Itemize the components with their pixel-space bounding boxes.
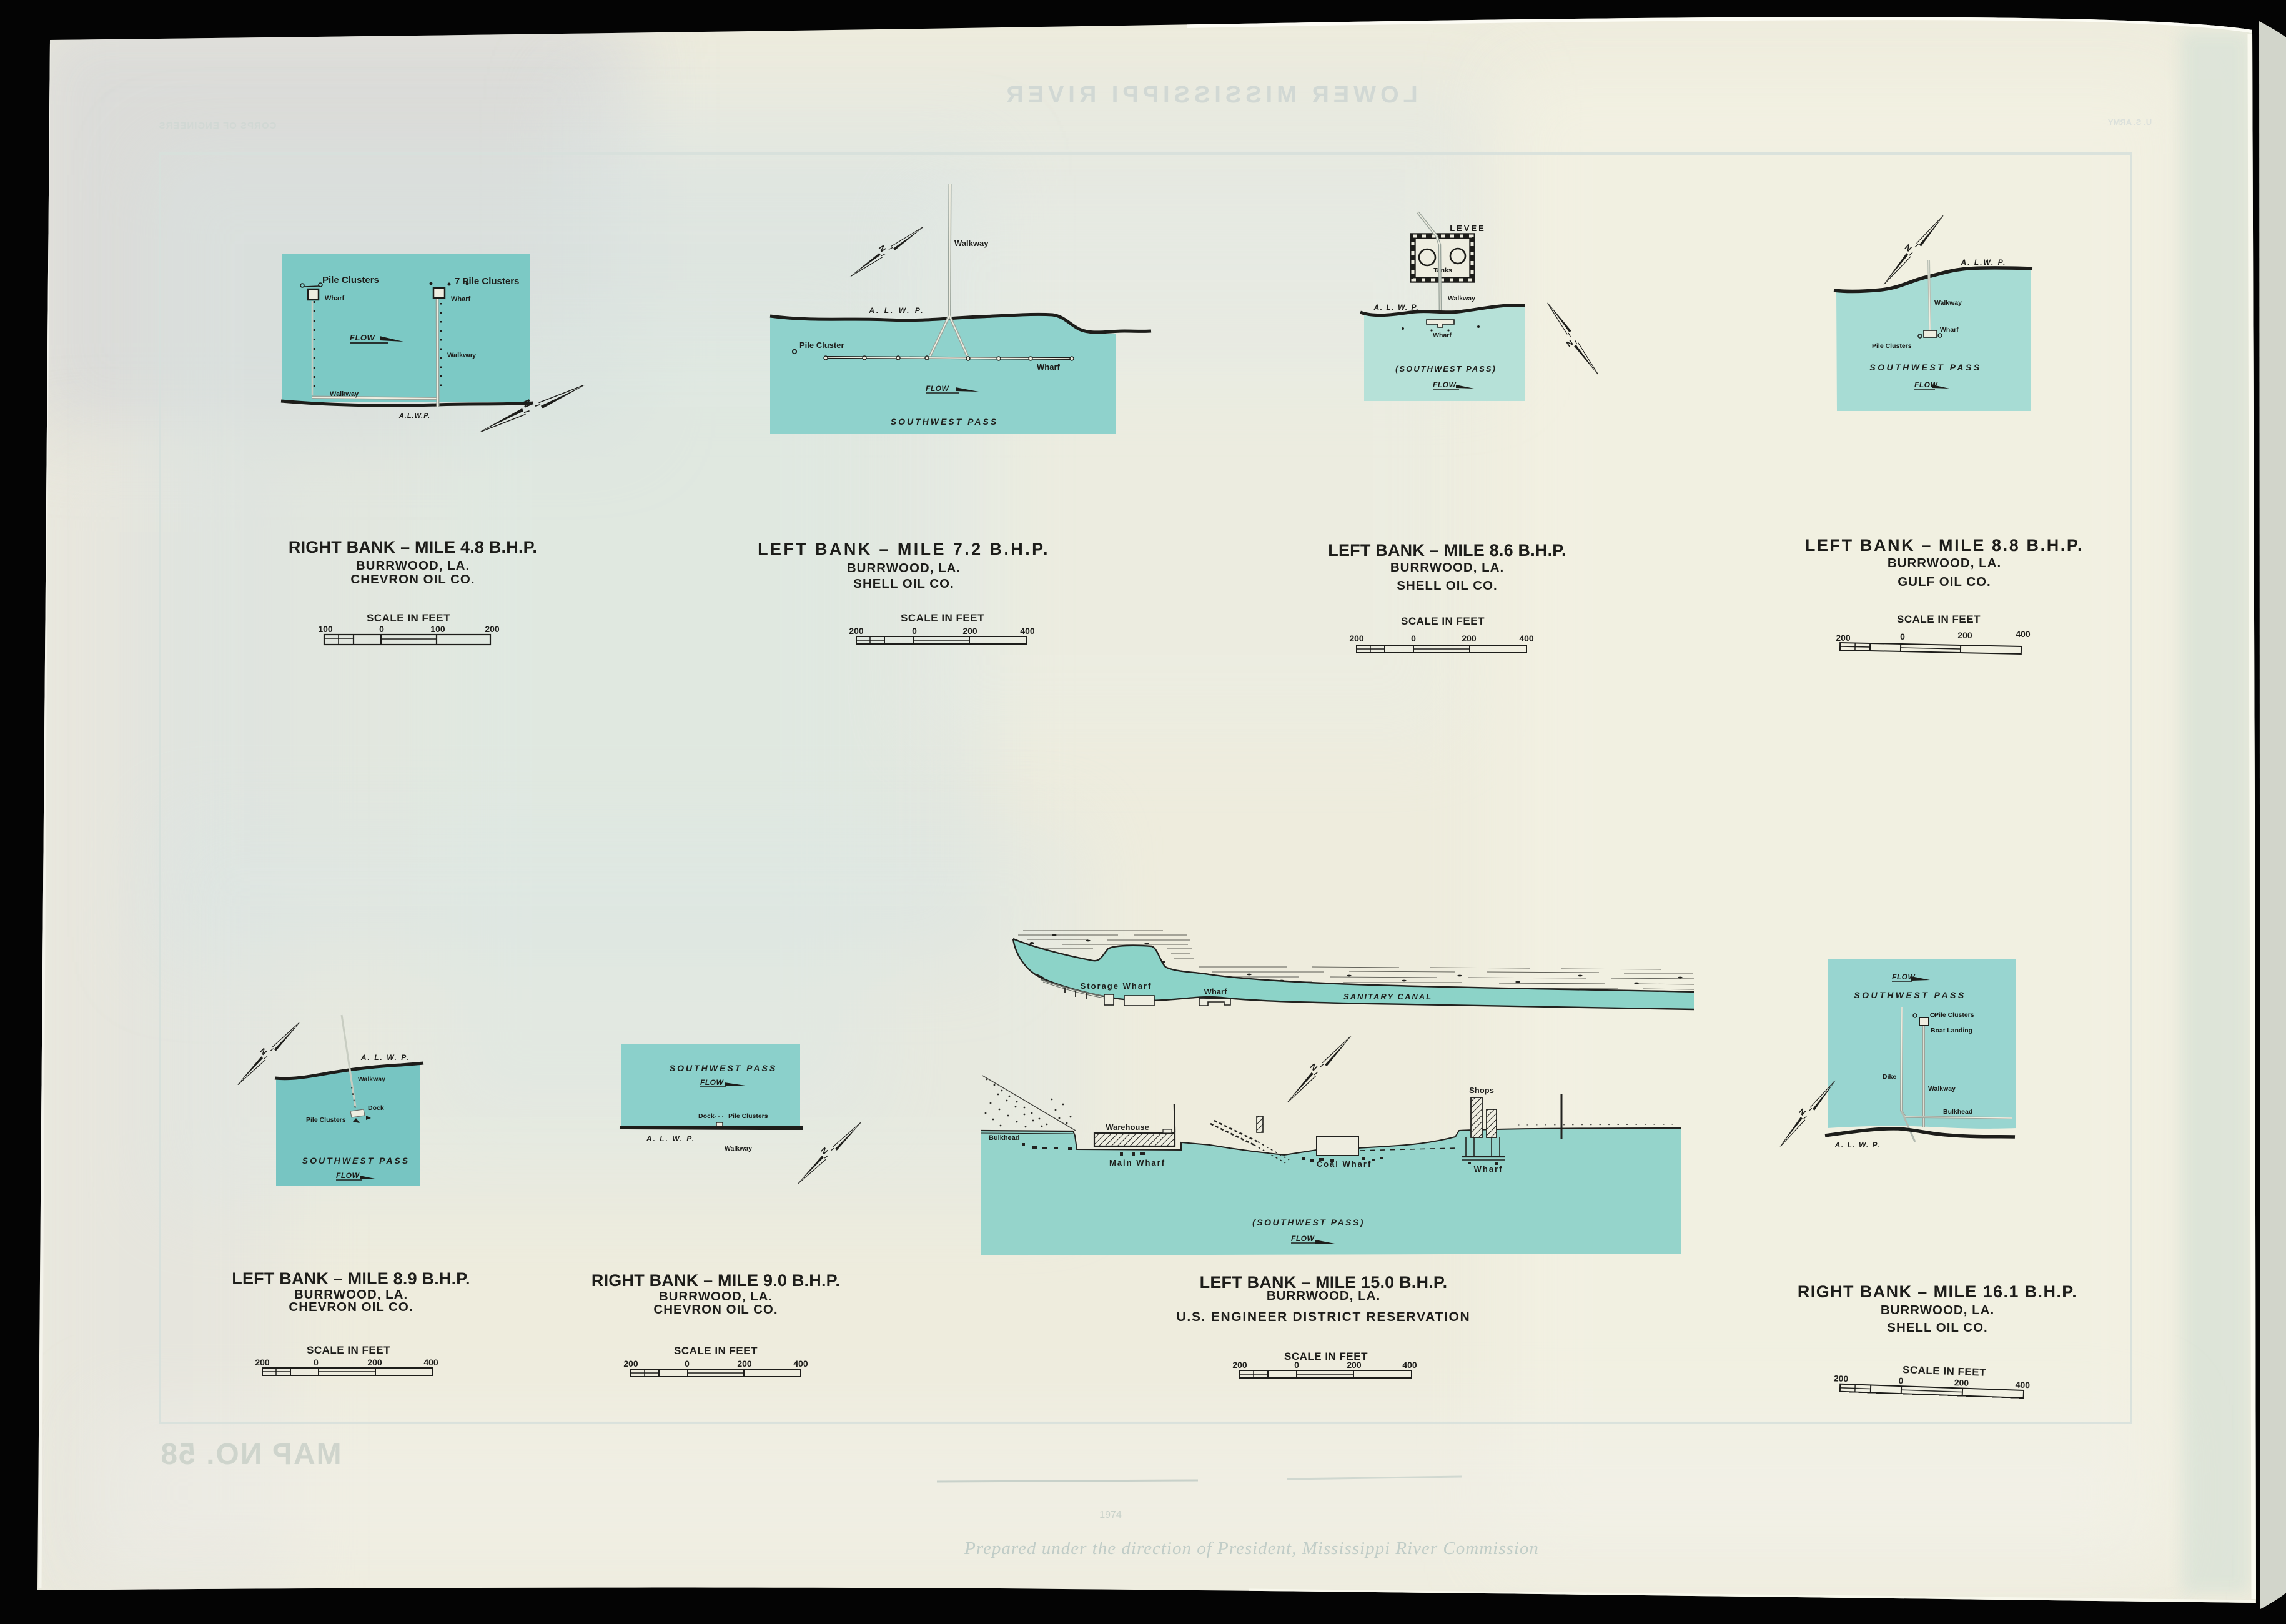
svg-text:RIGHT BANK – MILE 16.1 B.H.P.: RIGHT BANK – MILE 16.1 B.H.P. (1798, 1282, 2077, 1301)
svg-text:GULF OIL CO.: GULF OIL CO. (1898, 575, 1991, 589)
svg-text:SHELL OIL CO.: SHELL OIL CO. (1397, 578, 1497, 593)
svg-text:LOWER MISSISSIPPI RIVER: LOWER MISSISSIPPI RIVER (1002, 82, 1418, 108)
svg-text:CHEVRON OIL CO.: CHEVRON OIL CO. (289, 1300, 413, 1314)
svg-text:100: 100 (318, 624, 333, 634)
svg-text:SOUTHWEST PASS: SOUTHWEST PASS (670, 1063, 777, 1073)
svg-text:Pile Clusters: Pile Clusters (728, 1112, 768, 1120)
svg-text:SOUTHWEST PASS: SOUTHWEST PASS (1854, 990, 1966, 1000)
svg-text:Walkway: Walkway (954, 239, 989, 248)
svg-text:Walkway: Walkway (1928, 1085, 1956, 1092)
svg-text:Bulkhead: Bulkhead (1943, 1108, 1972, 1116)
svg-text:0: 0 (685, 1359, 690, 1369)
svg-text:LEFT BANK – MILE 8.6 B.H.P.: LEFT BANK – MILE 8.6 B.H.P. (1328, 541, 1566, 560)
svg-text:A.L.W.P.: A.L.W.P. (398, 412, 430, 420)
svg-text:Walkway: Walkway (358, 1076, 385, 1083)
svg-text:Wharf: Wharf (1433, 332, 1452, 339)
svg-text:200: 200 (1462, 633, 1477, 643)
svg-text:(SOUTHWEST PASS): (SOUTHWEST PASS) (1252, 1217, 1365, 1227)
svg-text:SOUTHWEST PASS: SOUTHWEST PASS (891, 417, 998, 427)
svg-text:0: 0 (912, 626, 917, 636)
svg-text:Wharf: Wharf (451, 295, 471, 303)
svg-text:FLOW: FLOW (700, 1078, 724, 1087)
svg-text:U.S. ENGINEER DISTRICT RESERVA: U.S. ENGINEER DISTRICT RESERVATION (1177, 1310, 1471, 1324)
svg-text:A. L. W. P.: A. L. W. P. (868, 306, 924, 315)
svg-text:SOUTHWEST PASS: SOUTHWEST PASS (1869, 362, 1981, 372)
svg-text:A. L. W. P.: A. L. W. P. (646, 1134, 695, 1143)
svg-text:SOUTHWEST PASS: SOUTHWEST PASS (302, 1156, 410, 1166)
svg-text:400: 400 (1402, 1360, 1417, 1370)
svg-text:RIGHT BANK – MILE 4.8 B.H.P.: RIGHT BANK – MILE 4.8 B.H.P. (289, 538, 537, 557)
svg-text:0: 0 (1898, 1375, 1904, 1385)
svg-text:0: 0 (1294, 1360, 1299, 1370)
svg-text:200: 200 (255, 1357, 270, 1367)
svg-text:400: 400 (793, 1359, 808, 1369)
svg-text:BURRWOOD, LA.: BURRWOOD, LA. (1267, 1289, 1380, 1303)
svg-text:Pile Cluster: Pile Cluster (799, 340, 844, 350)
svg-text:Wharf: Wharf (1204, 987, 1228, 996)
svg-text:FLOW: FLOW (926, 384, 949, 393)
svg-text:0: 0 (1900, 631, 1905, 641)
svg-text:Walkway: Walkway (330, 390, 359, 398)
svg-text:SCALE IN FEET: SCALE IN FEET (674, 1345, 758, 1357)
svg-text:BURRWOOD, LA.: BURRWOOD, LA. (847, 561, 961, 575)
svg-text:MAP NO. 58: MAP NO. 58 (159, 1438, 341, 1471)
svg-text:200: 200 (1834, 1373, 1849, 1384)
svg-text:Dike: Dike (1883, 1073, 1896, 1081)
svg-text:Walkway: Walkway (725, 1145, 752, 1152)
svg-text:Walkway: Walkway (447, 352, 477, 359)
svg-text:Main Wharf: Main Wharf (1109, 1158, 1165, 1167)
svg-text:Storage Wharf: Storage Wharf (1081, 981, 1152, 991)
svg-text:A. L. W. P.: A. L. W. P. (1834, 1141, 1881, 1149)
svg-text:FLOW: FLOW (336, 1171, 360, 1180)
svg-text:200: 200 (737, 1359, 752, 1369)
svg-text:Pile Clusters: Pile Clusters (322, 275, 379, 285)
svg-text:1974: 1974 (1099, 1510, 1122, 1520)
svg-text:U. S. ARMY: U. S. ARMY (2108, 117, 2152, 127)
svg-text:400: 400 (2015, 1380, 2030, 1390)
svg-text:Shops: Shops (1469, 1086, 1494, 1095)
svg-text:200: 200 (1836, 633, 1851, 643)
svg-text:200: 200 (1232, 1360, 1247, 1370)
svg-text:200: 200 (1954, 1377, 1969, 1388)
svg-text:FLOW: FLOW (350, 333, 375, 342)
svg-text:FLOW: FLOW (1433, 380, 1457, 389)
svg-text:Walkway: Walkway (1934, 299, 1962, 307)
svg-text:FLOW: FLOW (1291, 1234, 1315, 1243)
svg-text:200: 200 (1349, 633, 1364, 643)
svg-text:Wharf: Wharf (1474, 1164, 1503, 1174)
svg-text:SCALE IN FEET: SCALE IN FEET (367, 612, 450, 624)
svg-text:SCALE IN FEET: SCALE IN FEET (1897, 613, 1981, 625)
svg-text:Pile Clusters: Pile Clusters (1872, 342, 1912, 350)
svg-text:400: 400 (423, 1357, 438, 1367)
svg-text:Dock: Dock (368, 1104, 384, 1112)
svg-text:LEFT BANK – MILE 8.9 B.H.P.: LEFT BANK – MILE 8.9 B.H.P. (232, 1269, 470, 1288)
svg-text:Coal Wharf: Coal Wharf (1317, 1159, 1372, 1169)
svg-text:BURRWOOD, LA.: BURRWOOD, LA. (1888, 556, 2001, 570)
svg-text:SCALE IN FEET: SCALE IN FEET (901, 612, 984, 624)
svg-text:SHELL OIL CO.: SHELL OIL CO. (853, 577, 954, 591)
svg-text:Pile Clusters: Pile Clusters (1934, 1011, 1974, 1019)
svg-text:BURRWOOD, LA.: BURRWOOD, LA. (659, 1289, 773, 1304)
svg-text:A. L. W. P.: A. L. W. P. (1373, 303, 1420, 312)
svg-text:LEVEE: LEVEE (1450, 224, 1486, 233)
svg-text:SCALE IN FEET: SCALE IN FEET (307, 1344, 390, 1356)
svg-text:0: 0 (314, 1357, 319, 1367)
svg-text:BURRWOOD, LA.: BURRWOOD, LA. (1881, 1303, 1994, 1317)
svg-text:Prepared under the direction o: Prepared under the direction of Presiden… (964, 1538, 1539, 1558)
svg-text:Wharf: Wharf (1037, 362, 1061, 372)
svg-text:LEFT BANK – MILE 7.2 B.H.P.: LEFT BANK – MILE 7.2 B.H.P. (758, 540, 1050, 558)
svg-text:A. L.W. P.: A. L.W. P. (1961, 258, 2007, 267)
svg-text:CORPS OF ENGINEERS: CORPS OF ENGINEERS (159, 121, 277, 131)
svg-text:Tanks: Tanks (1433, 267, 1452, 274)
svg-text:CHEVRON OIL CO.: CHEVRON OIL CO. (350, 572, 475, 587)
svg-text:LEFT BANK – MILE 8.8 B.H.P.: LEFT BANK – MILE 8.8 B.H.P. (1805, 536, 2084, 555)
svg-text:(SOUTHWEST PASS): (SOUTHWEST PASS) (1395, 364, 1497, 374)
svg-text:100: 100 (430, 624, 445, 634)
svg-text:200: 200 (367, 1357, 382, 1367)
svg-text:200: 200 (849, 626, 864, 636)
svg-text:0: 0 (379, 624, 384, 634)
svg-text:Boat Landing: Boat Landing (1931, 1027, 1972, 1034)
svg-text:200: 200 (623, 1359, 638, 1369)
svg-text:A. L. W. P.: A. L. W. P. (360, 1053, 410, 1062)
svg-text:BURRWOOD, LA.: BURRWOOD, LA. (356, 558, 470, 573)
svg-text:SCALE IN FEET: SCALE IN FEET (1401, 615, 1485, 627)
svg-text:SHELL OIL CO.: SHELL OIL CO. (1887, 1320, 1987, 1335)
svg-text:SANITARY CANAL: SANITARY CANAL (1343, 992, 1432, 1001)
svg-text:Wharf: Wharf (325, 295, 345, 302)
svg-text:Dock: Dock (698, 1112, 715, 1120)
svg-text:400: 400 (1519, 633, 1534, 643)
svg-text:BURRWOOD, LA.: BURRWOOD, LA. (1390, 560, 1504, 575)
svg-text:CHEVRON OIL CO.: CHEVRON OIL CO. (653, 1302, 778, 1317)
svg-text:Bulkhead: Bulkhead (989, 1134, 1020, 1142)
svg-text:7 Pile Clusters: 7 Pile Clusters (455, 276, 519, 287)
svg-text:400: 400 (2016, 629, 2031, 639)
svg-text:Walkway: Walkway (1448, 295, 1475, 302)
svg-text:200: 200 (1347, 1360, 1362, 1370)
svg-text:Warehouse: Warehouse (1106, 1122, 1149, 1132)
svg-text:RIGHT BANK – MILE 9.0 B.H.P.: RIGHT BANK – MILE 9.0 B.H.P. (591, 1271, 840, 1290)
svg-text:200: 200 (485, 624, 500, 634)
svg-text:Pile Clusters: Pile Clusters (306, 1116, 346, 1124)
svg-text:Wharf: Wharf (1940, 326, 1959, 334)
svg-text:200: 200 (962, 626, 977, 636)
svg-text:400: 400 (1020, 626, 1035, 636)
svg-text:200: 200 (1957, 630, 1972, 640)
svg-text:0: 0 (1411, 633, 1416, 643)
